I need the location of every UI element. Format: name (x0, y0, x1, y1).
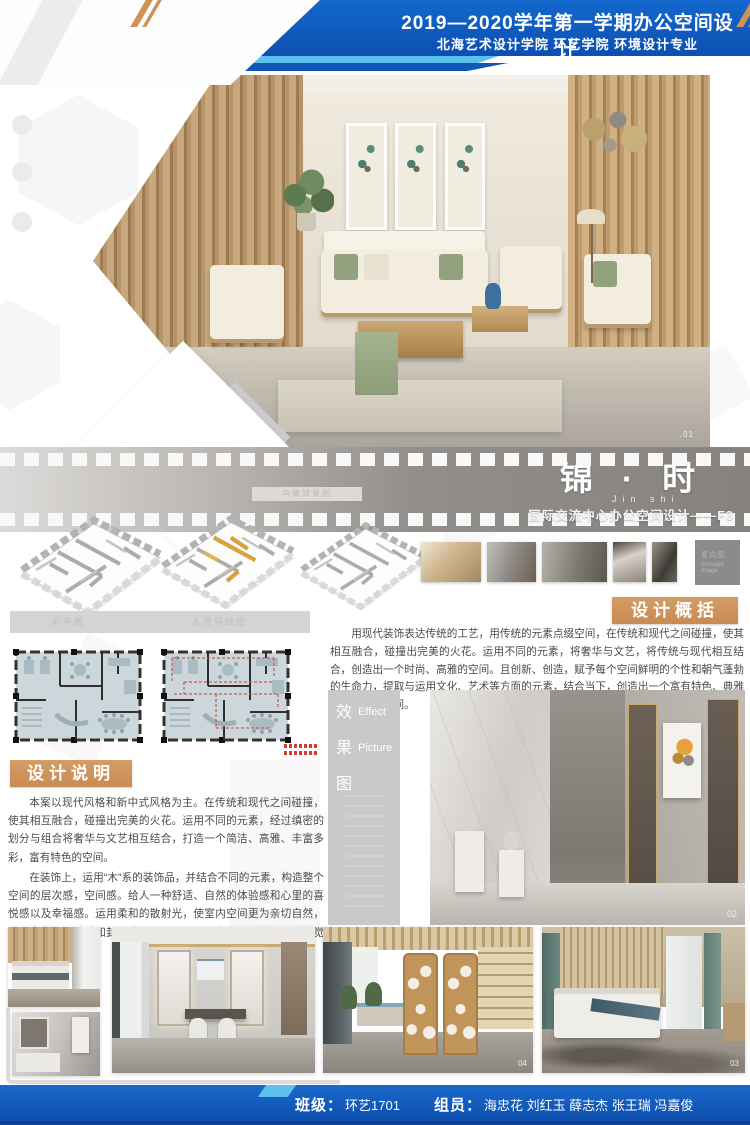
plan-label-bar: 彩平图 人流导线图 (10, 611, 310, 633)
footer-credits: 班级： 环艺1701 组员： 海忠花 刘红玉 薛志杰 张王瑞 冯嘉俊 (295, 1094, 745, 1115)
corridor-vase (462, 808, 478, 832)
open-office-plant (365, 982, 382, 1005)
bathroom-vanity (16, 1053, 60, 1072)
concept-image-box: 意向图 Concept Image (695, 540, 740, 585)
effect-word-1: Effect (358, 706, 386, 718)
dot-decor (12, 162, 32, 182)
dot-decor (12, 115, 32, 135)
tree-partition-panel (403, 953, 439, 1055)
bedroom-headboard-wall (8, 927, 72, 963)
corridor-bronze-panel (628, 704, 656, 897)
office-artwork (197, 959, 223, 979)
floor-plan-colored (8, 644, 148, 748)
corridor-bronze-panel (707, 699, 739, 906)
axon-model-2-highlighted (148, 508, 308, 618)
hero-plant-pot (297, 213, 317, 232)
class-label: 班级： (295, 1094, 343, 1115)
legend-dash-red (284, 751, 318, 755)
thumbnail-photo-2 (487, 542, 536, 582)
bathroom-artwork (72, 1017, 90, 1053)
bedroom2-curtain-right (704, 933, 720, 1041)
office-floor (112, 1038, 315, 1073)
concept-label-en: Concept Image (701, 562, 740, 574)
effect-char-3: 图 (336, 770, 354, 794)
circulation-legend (284, 744, 318, 758)
gallery-photo-bathroom (12, 1012, 100, 1076)
effect-char-2: 果 (336, 734, 354, 758)
bedroom-runner (12, 973, 69, 979)
hero-side-table (472, 306, 528, 332)
project-title-pinyin: Jin shi (612, 494, 732, 504)
gallery-photo-bedroom-small (8, 927, 100, 1007)
description-paragraph-1: 本案以现代风格和新中式风格为主。在传统和现代之间碰撞，使其相互融合，碰撞出完美的… (8, 794, 324, 867)
hero-pillow (439, 254, 464, 280)
hero-pillow (334, 254, 359, 280)
class-value: 环艺1701 (345, 1095, 400, 1114)
hero-armchair-left (210, 265, 284, 343)
hero-pillow (593, 261, 618, 287)
hero-pillow (364, 254, 389, 280)
thumbnail-photo-4 (613, 542, 646, 582)
hero-painting (395, 123, 436, 229)
axon-model-3 (288, 512, 438, 622)
office-window-curtain (112, 942, 149, 1041)
axon-caption-bar: 鸟瞰效果图 (252, 487, 362, 501)
project-subtitle: 国际交流中心办公空间设计——F3 (512, 505, 750, 524)
effect-char-1: 效 (336, 698, 354, 722)
corridor-pedestal (455, 831, 483, 892)
bedroom2-sheer-curtain (666, 936, 703, 1032)
overview-heading-box: 设计概括 (612, 597, 738, 624)
gallery-photo-number: 03 (730, 1059, 739, 1068)
gallery-photo-number: 04 (518, 1059, 527, 1068)
hero-blue-vase (485, 283, 501, 309)
corridor-artwork (663, 723, 701, 798)
members-label: 组员： (434, 1094, 482, 1115)
bedroom-floor (8, 989, 100, 1007)
poster-root: 空间设计大赛 2019—2020学年第一学期办公空间设计 北海艺术设计学院 环艺… (0, 0, 750, 1125)
effect-photo-corridor: 02 (430, 690, 745, 925)
film-strip-white-wedge (0, 0, 320, 85)
members-value: 海忠花 刘红玉 薛志杰 张王瑞 冯嘉俊 (484, 1095, 693, 1114)
hero-armchair-right-1 (500, 246, 562, 313)
plan-label-left: 彩平图 (52, 615, 85, 628)
corridor-pedestal (499, 850, 524, 897)
effect-sidebar: 效 Effect 果 Picture 图 (328, 690, 400, 925)
hexagon-decor (0, 300, 60, 410)
thumbnail-photo-5 (652, 542, 677, 582)
legend-dash-red (284, 744, 318, 748)
description-heading-box: 设计说明 (10, 760, 132, 787)
hero-photo-number: .01 (680, 430, 694, 439)
header-school-line: 北海艺术设计学院 环艺学院 环境设计专业 (395, 34, 740, 53)
thumbnail-photo-3 (542, 542, 607, 582)
hero-plant (278, 164, 334, 216)
hero-metal-wall-art (574, 101, 654, 164)
hero-painting (346, 123, 387, 229)
bedroom2-slat-wall (558, 927, 664, 997)
tree-partition-panel (443, 953, 479, 1055)
dot-decor (12, 212, 32, 232)
bathroom-mirror (19, 1017, 49, 1049)
project-title: 锦 · 时 (520, 452, 745, 500)
thumbnail-photo-1 (421, 542, 481, 582)
concept-label-cn: 意向图 (701, 550, 740, 560)
gallery-photo-office (112, 927, 315, 1073)
bedroom2-dresser (723, 1003, 745, 1041)
open-office-shelving (478, 947, 533, 1029)
gallery-photo-bedroom-large: 03 (542, 927, 745, 1073)
gallery-photo-open-office: 04 (323, 927, 533, 1073)
hexagon-decor (18, 95, 138, 225)
effect-photo-number: 02 (727, 909, 737, 919)
floor-plan-circulation (156, 644, 296, 748)
bedroom-window (72, 927, 100, 991)
effect-ghost-text (346, 795, 384, 910)
corridor-vase (504, 831, 518, 850)
plan-label-right: 人流导线图 (192, 615, 247, 628)
hero-floor-lamp (577, 209, 605, 224)
hero-rug (278, 380, 562, 432)
hero-green-throw (355, 332, 398, 395)
open-office-plant (340, 985, 357, 1008)
office-door (281, 942, 307, 1035)
effect-word-2: Picture (358, 742, 392, 754)
hero-painting (445, 123, 486, 229)
hero-floor-lamp-stem (591, 224, 593, 284)
